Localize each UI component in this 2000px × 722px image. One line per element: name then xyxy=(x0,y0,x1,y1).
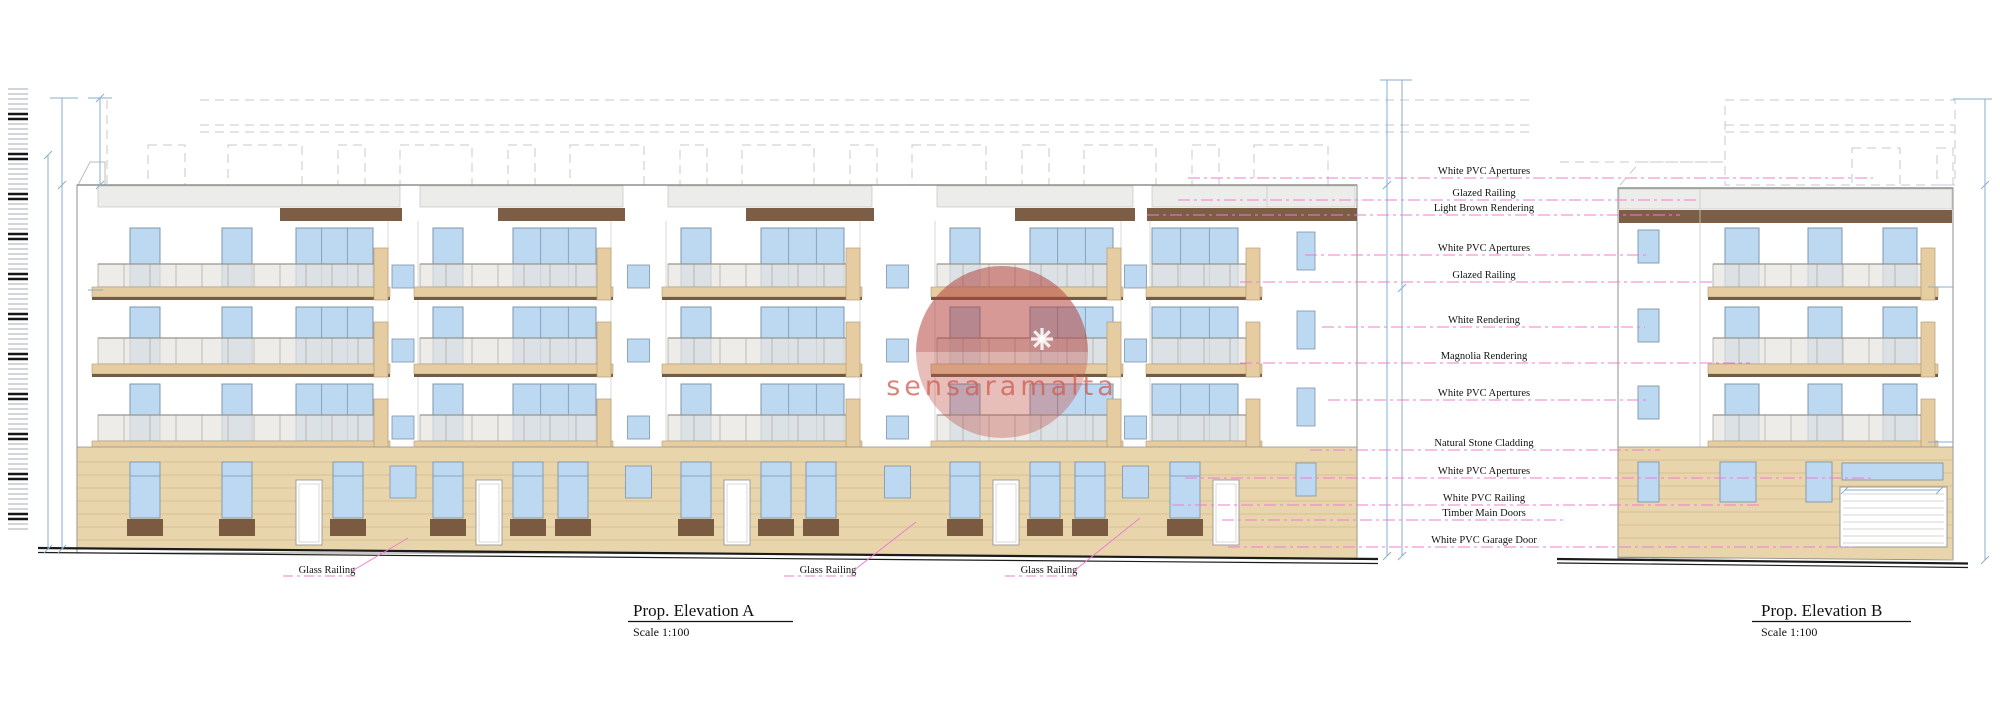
elevation-b-scale: Scale 1:100 xyxy=(1761,625,1817,639)
roof-dashed-outlines xyxy=(78,100,1955,185)
annotation-label: White PVC Garage Door xyxy=(1431,535,1537,546)
annotation-label: White PVC Apertures xyxy=(1438,166,1530,177)
annotation-label: Glazed Railing xyxy=(1452,270,1516,281)
annotation-label: Light Brown Rendering xyxy=(1434,203,1535,214)
elevation-b-title: Prop. Elevation B xyxy=(1761,601,1882,620)
elevation-a-title: Prop. Elevation A xyxy=(633,601,755,620)
annotation-label: Magnolia Rendering xyxy=(1441,351,1528,362)
annotation-label: Timber Main Doors xyxy=(1442,508,1526,519)
generated-drawing: White PVC AperturesGlazed RailingLight B… xyxy=(8,80,1992,576)
building-a xyxy=(77,185,1357,559)
elevation-a-scale: Scale 1:100 xyxy=(633,625,689,639)
glass-railing-label: Glass Railing xyxy=(800,565,858,576)
elevation-b-caption: Prop. Elevation B Scale 1:100 xyxy=(1752,601,1911,639)
elevation-drawing-sheet: White PVC AperturesGlazed RailingLight B… xyxy=(0,0,2000,722)
watermark-text: sensaramalta xyxy=(886,371,1118,402)
survey-strip xyxy=(8,89,28,529)
glass-railing-label: Glass Railing xyxy=(1021,565,1079,576)
annotation-label: White PVC Railing xyxy=(1443,493,1526,504)
annotation-label: White PVC Apertures xyxy=(1438,243,1530,254)
elevation-drawing-svg: White PVC AperturesGlazed RailingLight B… xyxy=(0,0,2000,722)
elevation-a-caption: Prop. Elevation A Scale 1:100 xyxy=(628,601,793,639)
annotation-label: White PVC Apertures xyxy=(1438,388,1530,399)
building-b xyxy=(1618,188,1953,560)
annotation-label: Glazed Railing xyxy=(1452,188,1516,199)
building-b-ground xyxy=(1618,447,1953,560)
annotation-label: White Rendering xyxy=(1448,315,1521,326)
glass-railing-label: Glass Railing xyxy=(299,565,357,576)
building-a-ground xyxy=(77,447,1357,559)
annotation-label: White PVC Apertures xyxy=(1438,466,1530,477)
annotation-label: Natural Stone Cladding xyxy=(1434,438,1534,449)
